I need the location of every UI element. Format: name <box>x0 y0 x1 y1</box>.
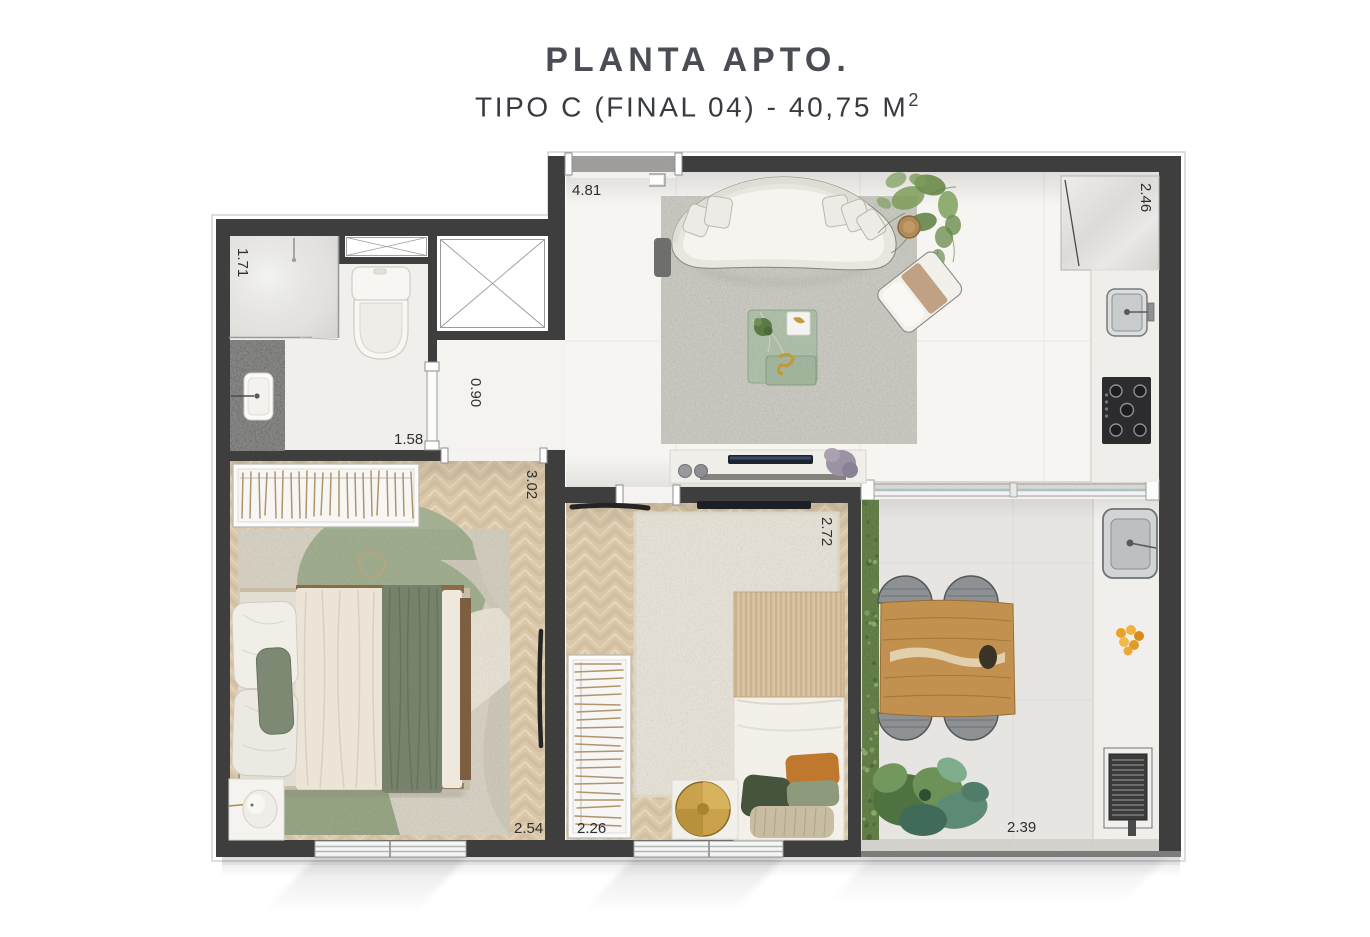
svg-text:4.81: 4.81 <box>572 182 601 199</box>
svg-text:2.46: 2.46 <box>1137 183 1154 212</box>
svg-text:2.72: 2.72 <box>818 517 835 546</box>
svg-text:3.02: 3.02 <box>523 470 540 499</box>
svg-text:2.39: 2.39 <box>1007 819 1036 836</box>
svg-text:2.26: 2.26 <box>577 820 606 837</box>
svg-text:2.54: 2.54 <box>514 820 543 837</box>
svg-text:0.90: 0.90 <box>467 378 484 407</box>
svg-text:1.58: 1.58 <box>394 431 423 448</box>
svg-text:1.71: 1.71 <box>234 248 251 277</box>
